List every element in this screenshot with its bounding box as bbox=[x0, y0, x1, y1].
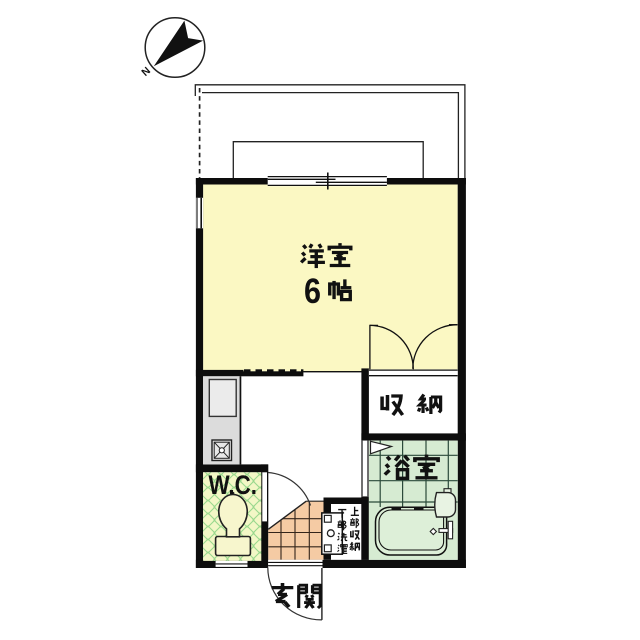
svg-text:6: 6 bbox=[304, 271, 321, 311]
svg-text:W.C.: W.C. bbox=[209, 470, 258, 500]
